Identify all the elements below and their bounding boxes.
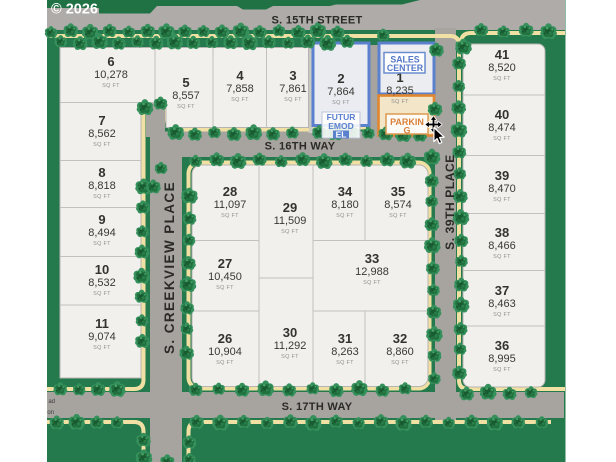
svg-text:SQ FT: SQ FT [231,97,249,103]
svg-text:SQ FT: SQ FT [221,213,239,219]
svg-text:SQ FT: SQ FT [216,360,234,366]
svg-text:33: 33 [365,251,379,266]
svg-text:28: 28 [223,184,237,199]
svg-text:8,180: 8,180 [331,199,359,211]
svg-text:SQ FT: SQ FT [216,285,234,291]
svg-text:8,520: 8,520 [488,62,516,74]
svg-text:3: 3 [289,68,296,83]
svg-text:26: 26 [218,331,232,346]
svg-text:31: 31 [338,331,352,346]
svg-text:8,235: 8,235 [386,85,414,97]
svg-text:12,988: 12,988 [355,266,389,278]
svg-text:40: 40 [495,107,509,122]
svg-text:S. 39TH PLACE: S. 39TH PLACE [443,154,457,250]
svg-text:11,097: 11,097 [214,199,247,211]
svg-text:10: 10 [95,262,109,277]
svg-text:8,494: 8,494 [88,227,116,239]
svg-text:10,278: 10,278 [94,69,128,81]
svg-text:SQ FT: SQ FT [336,213,354,219]
svg-text:SQ FT: SQ FT [493,312,511,318]
svg-text:SQ FT: SQ FT [493,76,511,82]
svg-text:SQ FT: SQ FT [93,194,111,200]
svg-text:SQ FT: SQ FT [93,291,111,297]
svg-text:7: 7 [98,113,105,128]
svg-text:9: 9 [98,212,105,227]
svg-text:SQ FT: SQ FT [102,83,120,89]
svg-text:SQ FT: SQ FT [391,99,409,105]
svg-text:5: 5 [182,75,189,90]
svg-text:ad: ad [48,399,55,405]
svg-text:10,450: 10,450 [208,271,242,283]
svg-text:S. CREEKVIEW PLACE: S. CREEKVIEW PLACE [162,181,177,354]
svg-text:© 2026: © 2026 [51,2,98,18]
svg-text:4: 4 [236,68,244,83]
svg-text:8,470: 8,470 [488,183,516,195]
svg-text:8,818: 8,818 [88,180,116,192]
svg-text:8,466: 8,466 [488,240,516,252]
svg-text:SQ FT: SQ FT [493,197,511,203]
svg-text:8,557: 8,557 [172,90,200,102]
svg-text:EL: EL [336,130,347,140]
svg-text:SQ FT: SQ FT [336,360,354,366]
svg-text:SQ FT: SQ FT [93,241,111,247]
svg-text:34: 34 [338,184,353,199]
svg-text:SQ FT: SQ FT [389,213,407,219]
svg-text:8,574: 8,574 [384,199,412,211]
svg-text:7,861: 7,861 [279,83,307,95]
svg-text:SQ FT: SQ FT [332,100,350,106]
svg-text:on: on [47,410,54,416]
svg-text:10,904: 10,904 [208,346,242,358]
svg-text:11,292: 11,292 [274,340,307,352]
svg-text:9,074: 9,074 [88,331,116,343]
svg-text:8: 8 [98,165,105,180]
svg-text:SQ FT: SQ FT [284,97,302,103]
svg-text:37: 37 [495,283,509,298]
svg-text:8,860: 8,860 [386,346,414,358]
svg-text:SQ FT: SQ FT [93,142,111,148]
svg-text:SQ FT: SQ FT [177,104,195,110]
svg-text:11,509: 11,509 [274,215,307,227]
svg-text:SQ FT: SQ FT [493,136,511,142]
svg-text:SQ FT: SQ FT [363,280,381,286]
svg-text:G: G [403,126,410,136]
svg-text:6: 6 [107,54,114,69]
svg-text:SQ FT: SQ FT [281,354,299,360]
svg-text:SQ FT: SQ FT [93,345,111,351]
svg-text:8,532: 8,532 [88,277,116,289]
svg-text:30: 30 [283,325,297,340]
svg-text:39: 39 [495,168,509,183]
svg-text:41: 41 [495,47,509,62]
svg-text:SQ FT: SQ FT [391,360,409,366]
svg-text:S. 15TH STREET: S. 15TH STREET [272,15,363,27]
svg-text:8,474: 8,474 [488,122,516,134]
svg-text:32: 32 [393,331,407,346]
svg-text:8,463: 8,463 [488,298,516,310]
svg-text:SQ FT: SQ FT [493,254,511,260]
svg-text:S. 16TH WAY: S. 16TH WAY [265,141,336,153]
svg-text:2: 2 [337,71,344,86]
svg-text:35: 35 [391,184,405,199]
svg-text:29: 29 [283,200,297,215]
svg-text:36: 36 [495,338,509,353]
svg-text:7,864: 7,864 [327,86,355,98]
svg-text:11: 11 [95,316,109,331]
svg-text:38: 38 [495,225,509,240]
svg-text:8,995: 8,995 [488,353,516,365]
svg-text:27: 27 [218,256,232,271]
svg-text:8,562: 8,562 [88,128,116,140]
svg-text:CENTER: CENTER [387,63,424,73]
svg-text:SQ FT: SQ FT [281,229,299,235]
svg-text:8,263: 8,263 [331,346,359,358]
svg-text:7,858: 7,858 [226,83,254,95]
svg-text:SQ FT: SQ FT [493,367,511,373]
svg-text:S. 17TH WAY: S. 17TH WAY [282,401,353,413]
